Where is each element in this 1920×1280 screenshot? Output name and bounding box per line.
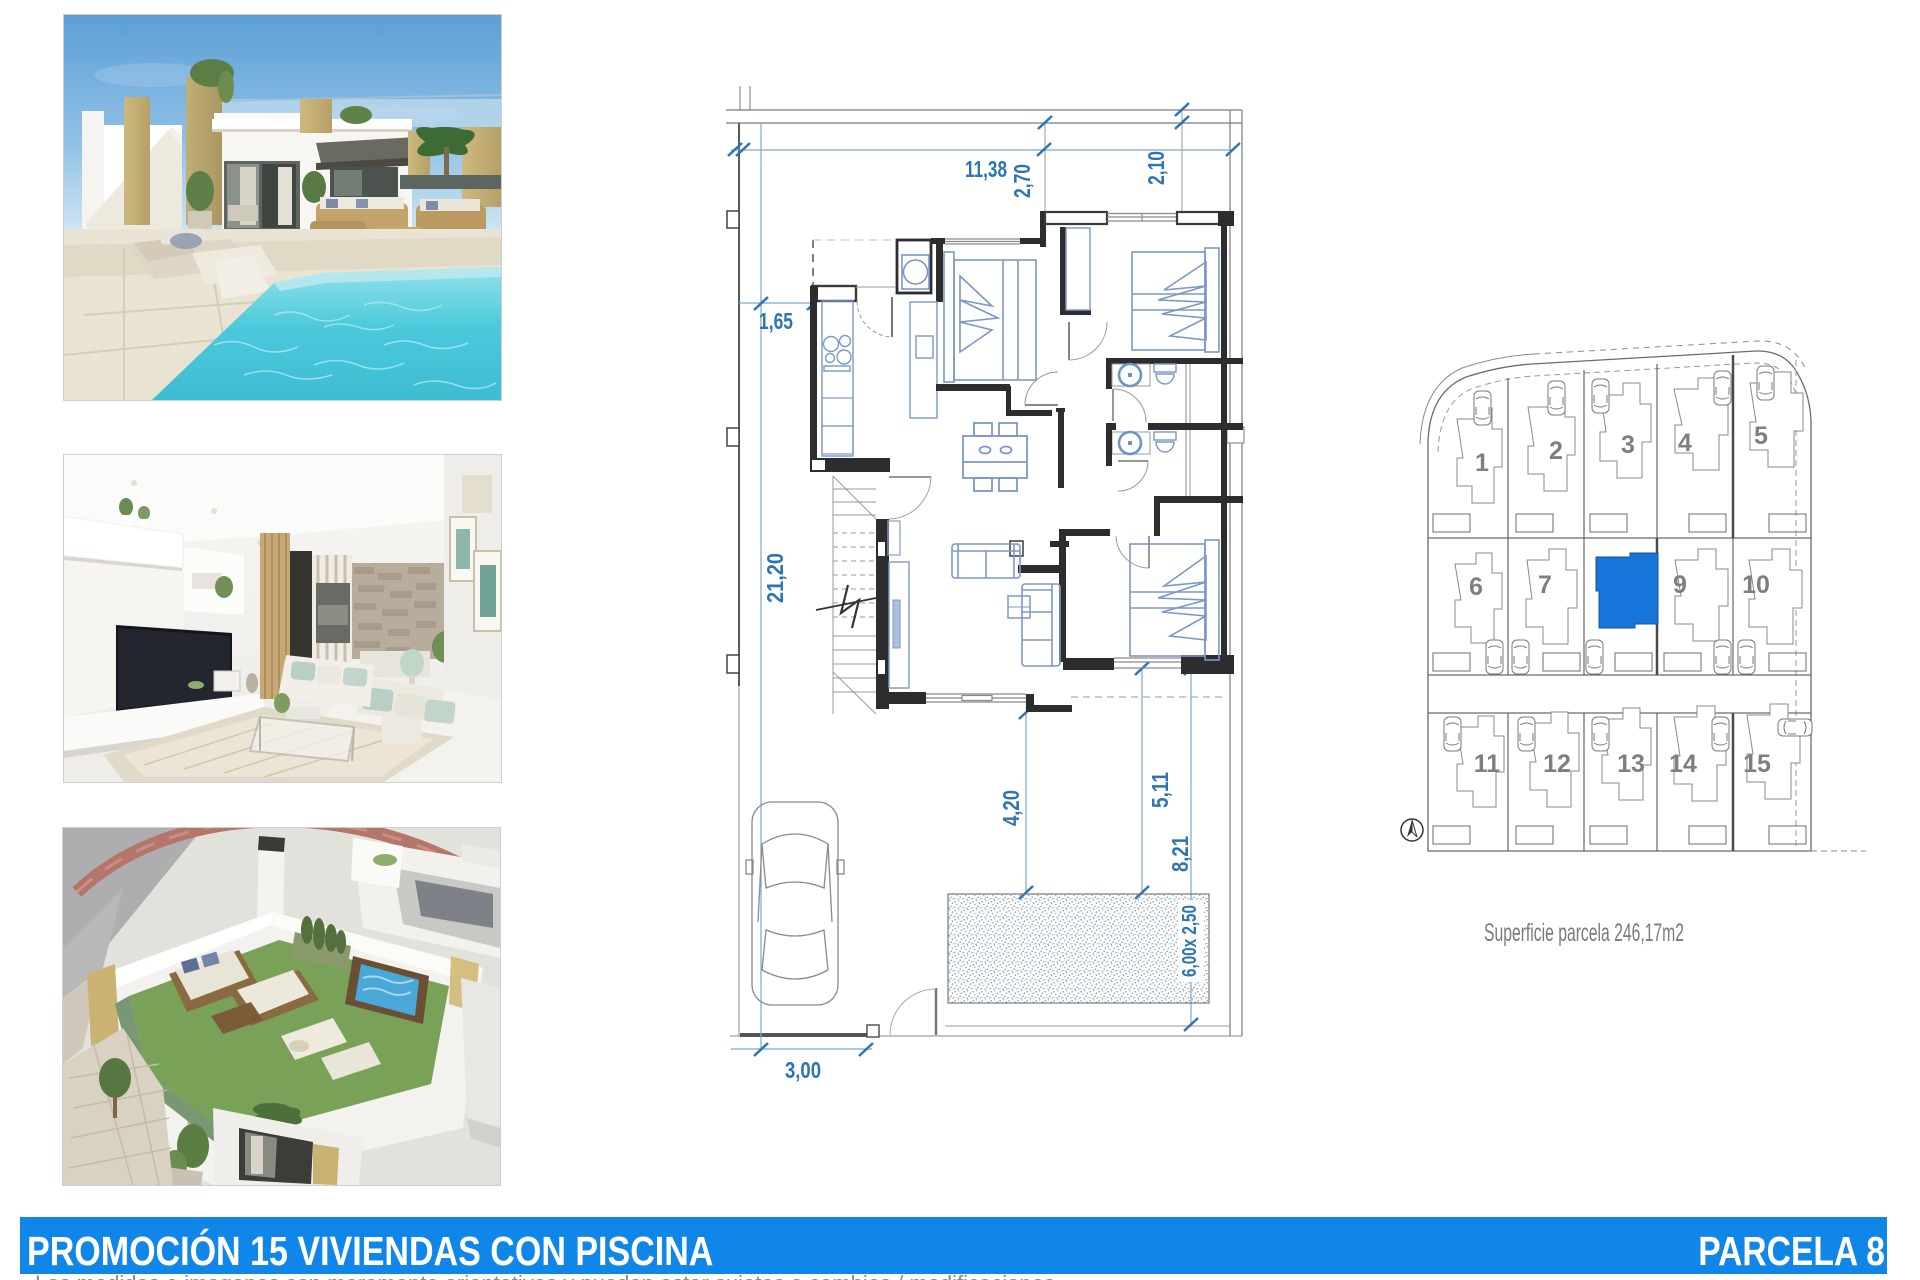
svg-text:14: 14 <box>1669 750 1697 778</box>
svg-text:2: 2 <box>1549 437 1563 465</box>
svg-text:11,38: 11,38 <box>965 156 1007 182</box>
svg-text:6,00x 2,50: 6,00x 2,50 <box>1179 905 1201 977</box>
svg-text:3: 3 <box>1621 431 1635 459</box>
svg-text:8,21: 8,21 <box>1167 836 1193 872</box>
svg-text:4,20: 4,20 <box>998 790 1024 826</box>
svg-text:21,20: 21,20 <box>762 553 788 603</box>
svg-text:11: 11 <box>1474 750 1501 778</box>
svg-text:4: 4 <box>1678 429 1692 457</box>
svg-text:Superficie parcela 246,17m2: Superficie parcela 246,17m2 <box>1484 919 1684 947</box>
svg-text:7: 7 <box>1538 571 1552 599</box>
svg-text:10: 10 <box>1742 571 1770 599</box>
svg-text:12: 12 <box>1543 750 1571 778</box>
svg-text:5,11: 5,11 <box>1147 772 1173 808</box>
svg-text:15: 15 <box>1743 750 1771 778</box>
svg-text:3,00: 3,00 <box>785 1057 821 1083</box>
svg-text:1,65: 1,65 <box>759 308 793 334</box>
svg-text:13: 13 <box>1617 750 1645 778</box>
svg-text:9: 9 <box>1673 571 1687 599</box>
svg-text:1: 1 <box>1475 449 1489 477</box>
svg-text:2,70: 2,70 <box>1009 164 1035 198</box>
svg-text:6: 6 <box>1469 573 1483 601</box>
svg-text:2,10: 2,10 <box>1143 151 1169 185</box>
svg-text:5: 5 <box>1754 422 1768 450</box>
